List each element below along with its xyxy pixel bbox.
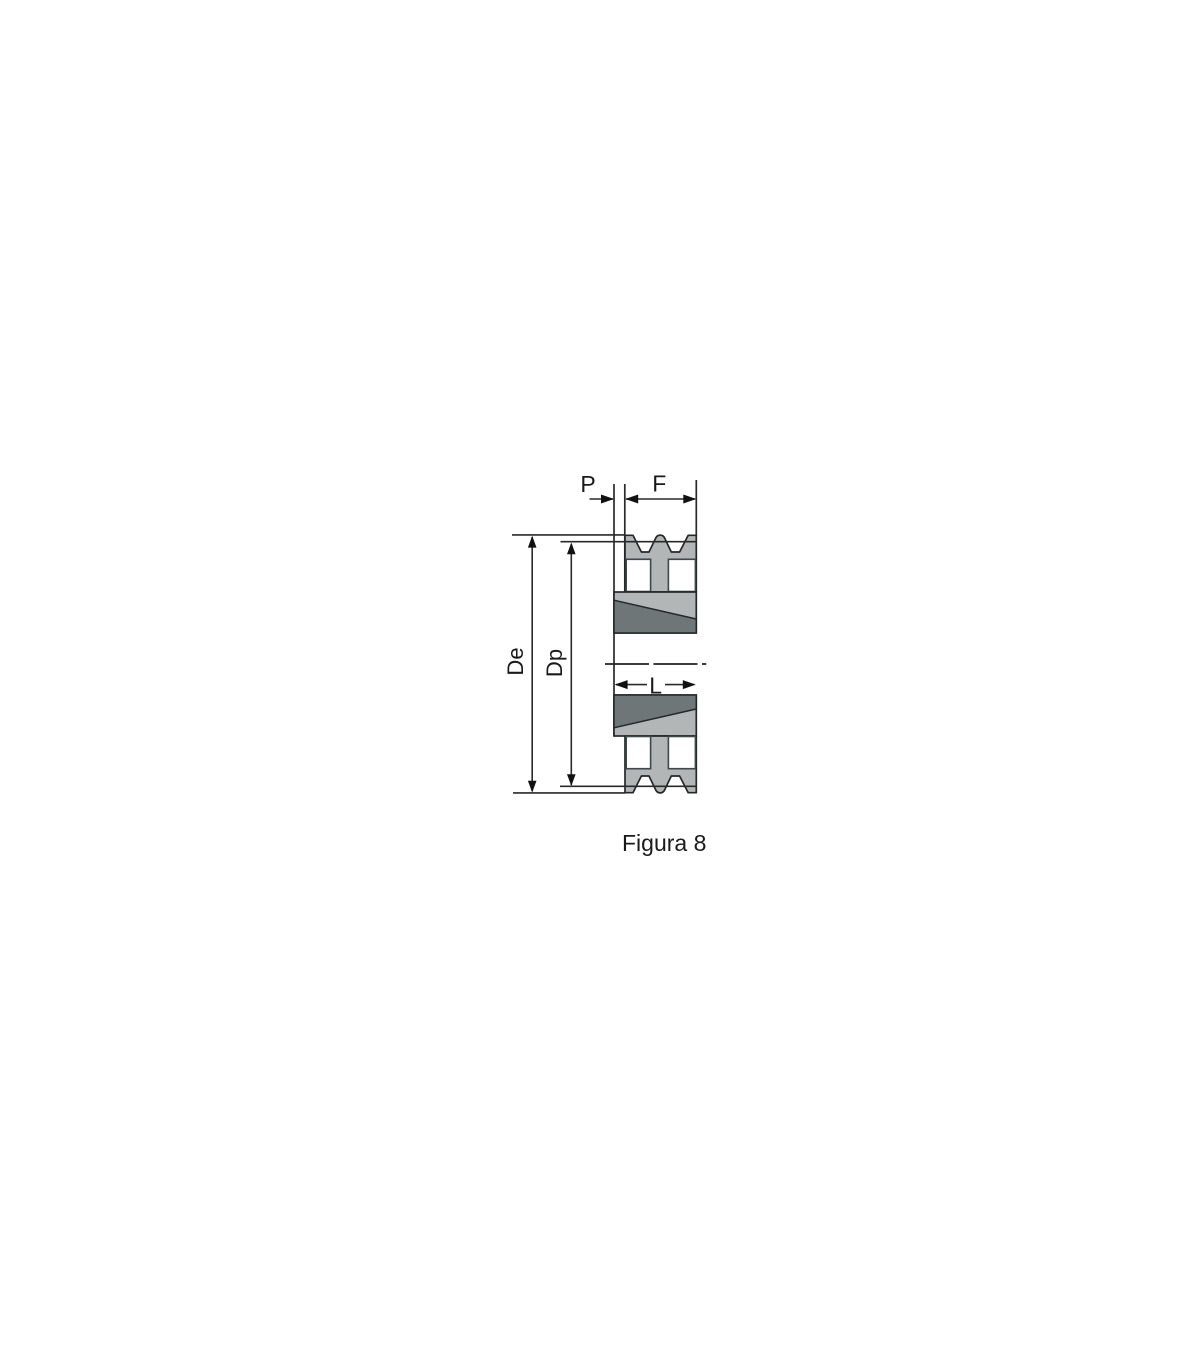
svg-text:P: P bbox=[580, 471, 595, 497]
svg-text:Dp: Dp bbox=[542, 649, 567, 677]
svg-text:F: F bbox=[652, 471, 666, 497]
svg-text:Figura 8: Figura 8 bbox=[622, 830, 706, 856]
svg-text:De: De bbox=[503, 647, 528, 675]
svg-text:L: L bbox=[649, 672, 662, 698]
